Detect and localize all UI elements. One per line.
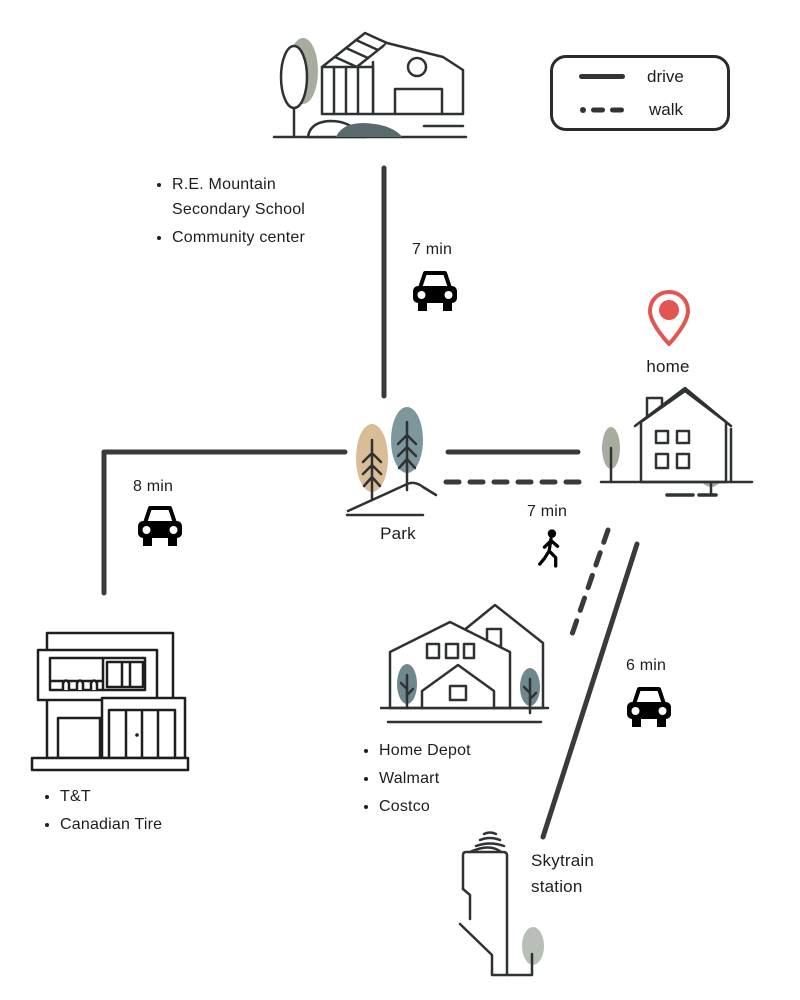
west-shops-illustration xyxy=(25,625,200,780)
list-item: R.E. Mountain Secondary School xyxy=(172,173,324,223)
time-label-west-drive: 8 min xyxy=(133,478,173,496)
legend-walk-row: walk xyxy=(579,100,727,120)
west-shops-list: T&T Canadian Tire xyxy=(38,782,230,841)
skytrain-label: Skytrain station xyxy=(531,848,621,901)
list-item: T&T xyxy=(60,785,230,810)
list-item: Walmart xyxy=(379,767,549,792)
school-list: R.E. Mountain Secondary School Community… xyxy=(150,170,324,253)
list-item: Home Depot xyxy=(379,739,549,764)
route-home-shops-walk-line xyxy=(569,530,608,643)
park-illustration xyxy=(335,395,445,530)
walk-line-sample xyxy=(579,106,627,114)
tree-outline xyxy=(281,46,307,108)
legend-walk-label: walk xyxy=(649,100,683,120)
list-item: Costco xyxy=(379,795,549,820)
drive-line-sample xyxy=(579,74,625,79)
map-pin-icon xyxy=(642,288,696,350)
car-icon xyxy=(625,684,673,728)
legend: drive walk xyxy=(550,55,730,131)
time-label-skytrain-drive: 6 min xyxy=(626,657,666,675)
neighborhood-map: drive walk R.E. Mountain Secondary Schoo… xyxy=(0,0,800,1000)
south-shops-illustration xyxy=(380,595,560,740)
home-label: home xyxy=(628,357,708,377)
legend-drive-row: drive xyxy=(579,67,727,87)
home-illustration xyxy=(595,385,760,510)
time-label-walk: 7 min xyxy=(527,503,567,521)
time-label-school-drive: 7 min xyxy=(412,241,452,259)
south-shops-list: Home Depot Walmart Costco xyxy=(357,736,549,822)
pedestrian-icon xyxy=(536,527,566,573)
list-item: Community center xyxy=(172,226,324,251)
car-icon xyxy=(411,268,459,312)
school-illustration xyxy=(270,25,480,150)
list-item: Canadian Tire xyxy=(60,813,230,838)
legend-drive-label: drive xyxy=(647,67,684,87)
car-icon xyxy=(136,503,184,547)
park-label: Park xyxy=(358,524,438,544)
